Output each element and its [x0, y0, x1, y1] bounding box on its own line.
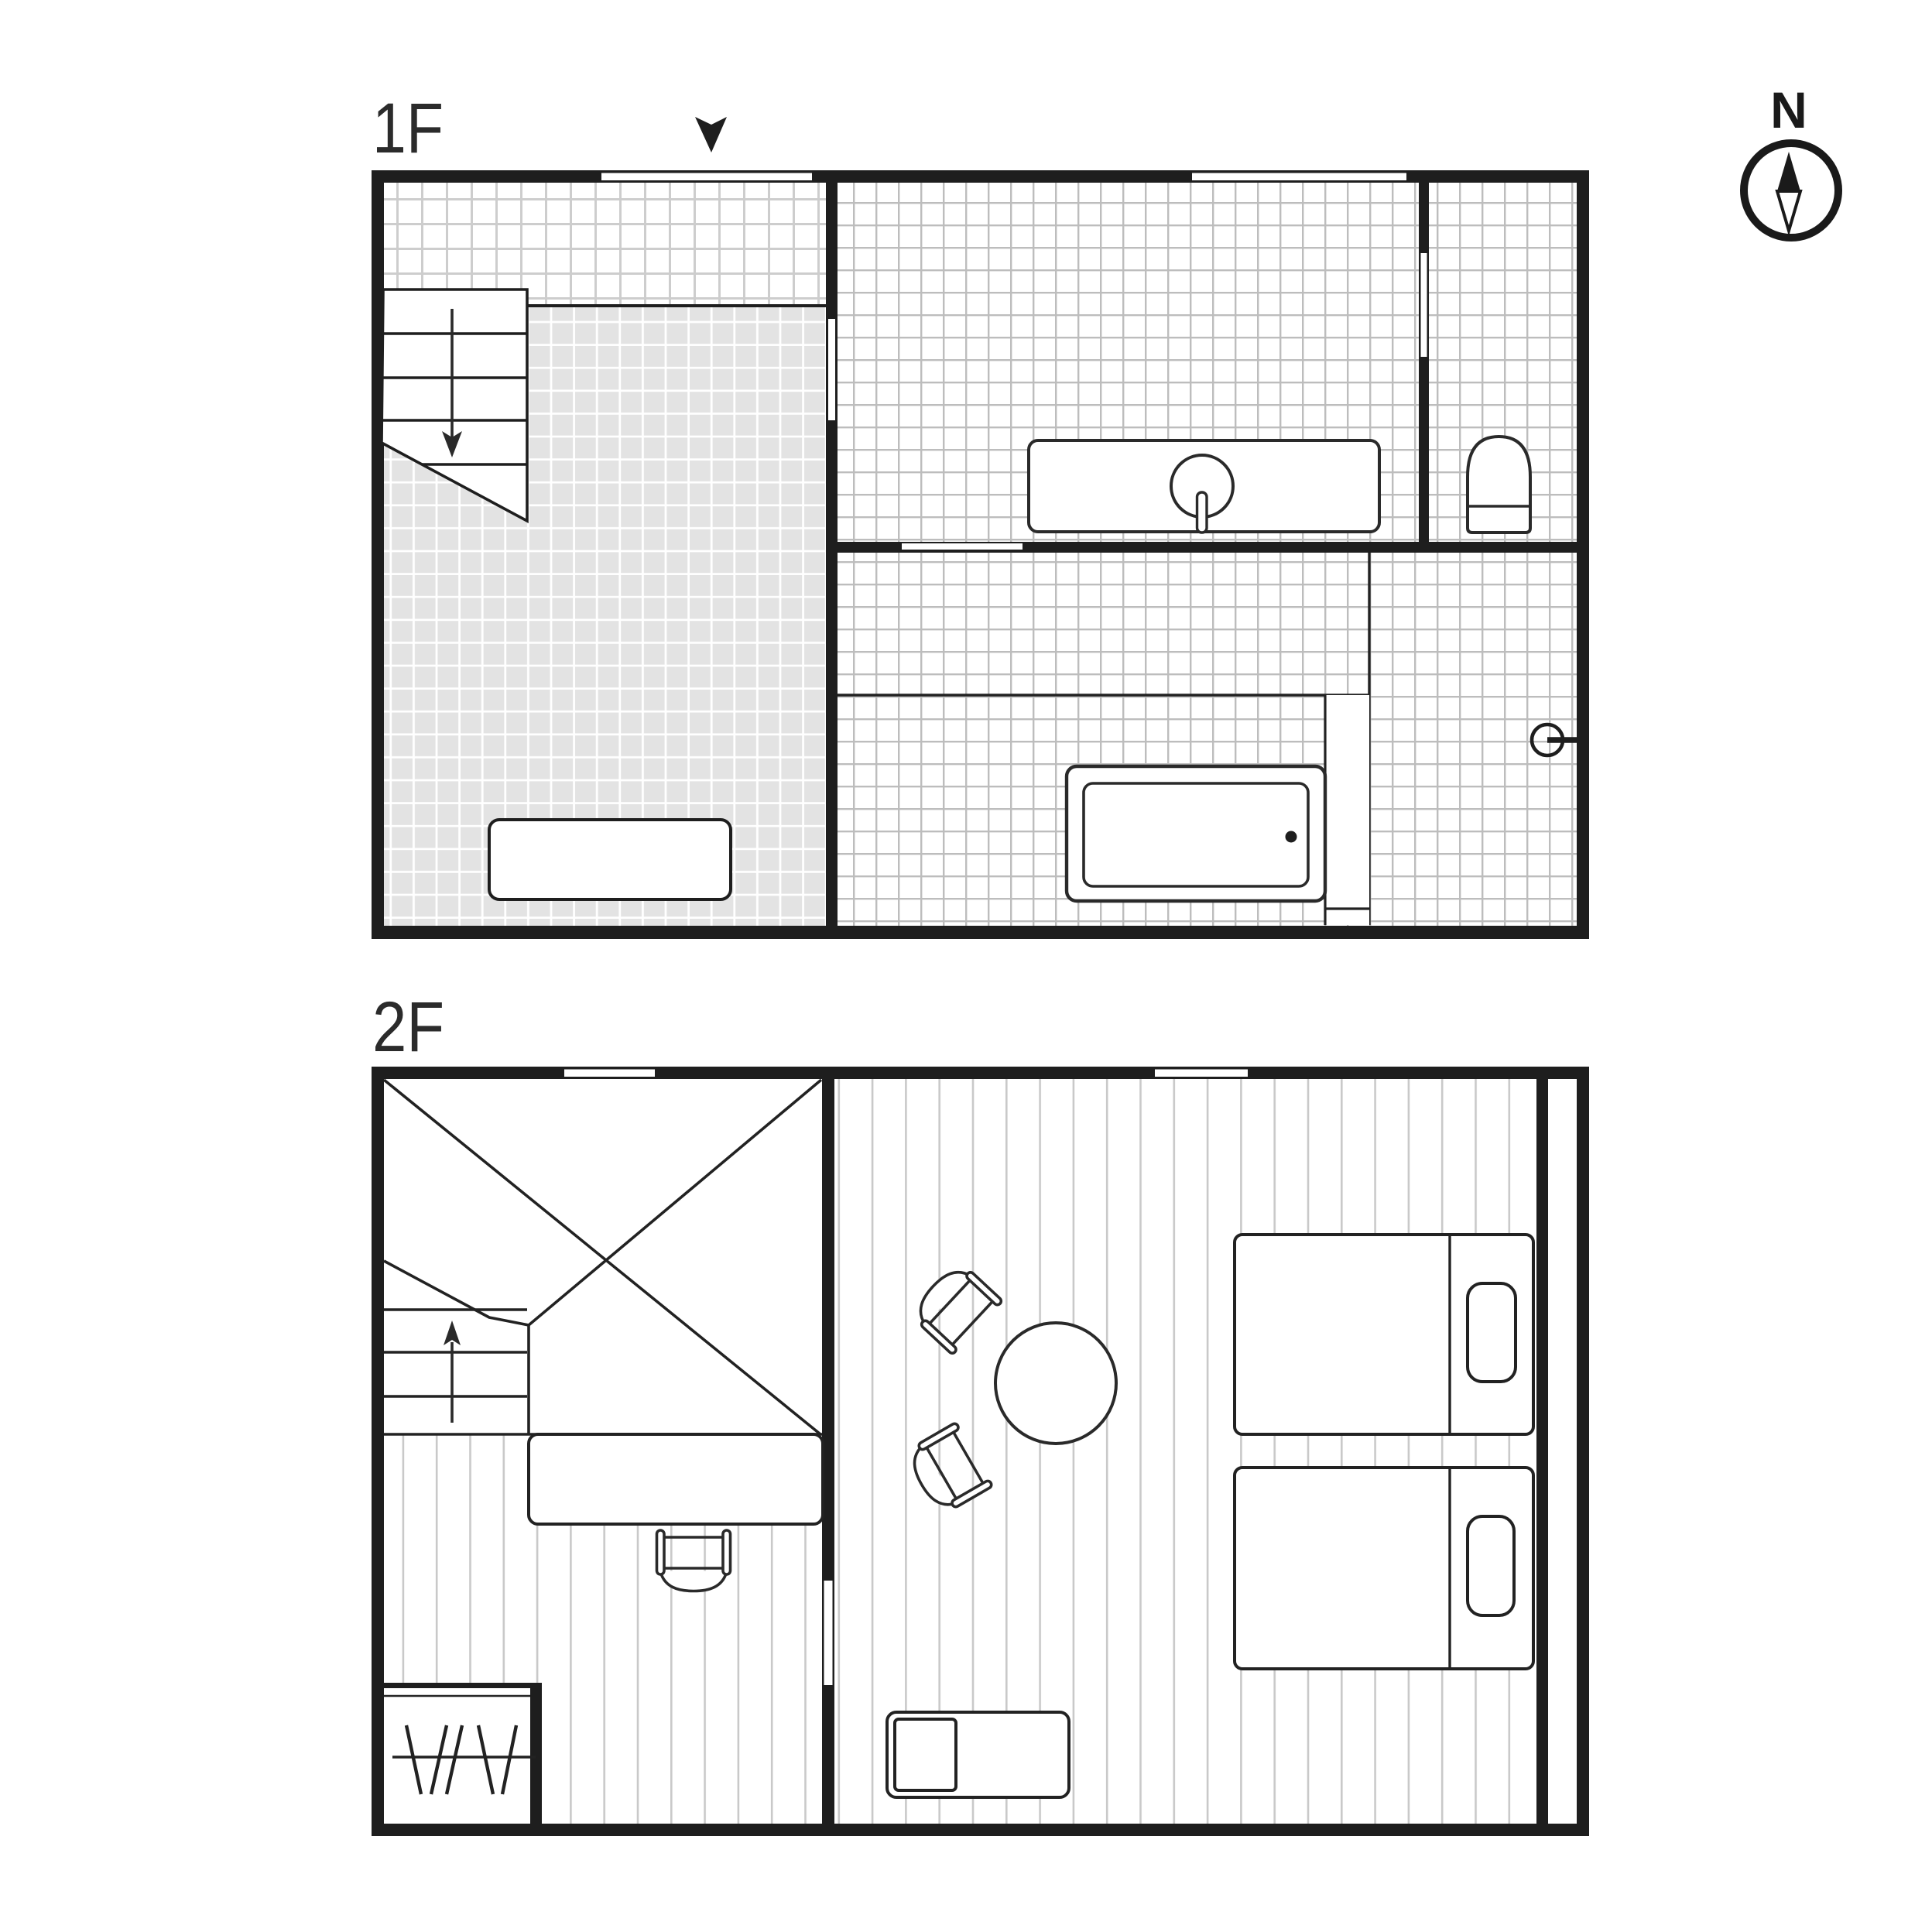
svg-text:N: N [1770, 81, 1807, 139]
svg-text:1F: 1F [372, 89, 444, 168]
svg-text:2F: 2F [372, 988, 444, 1067]
